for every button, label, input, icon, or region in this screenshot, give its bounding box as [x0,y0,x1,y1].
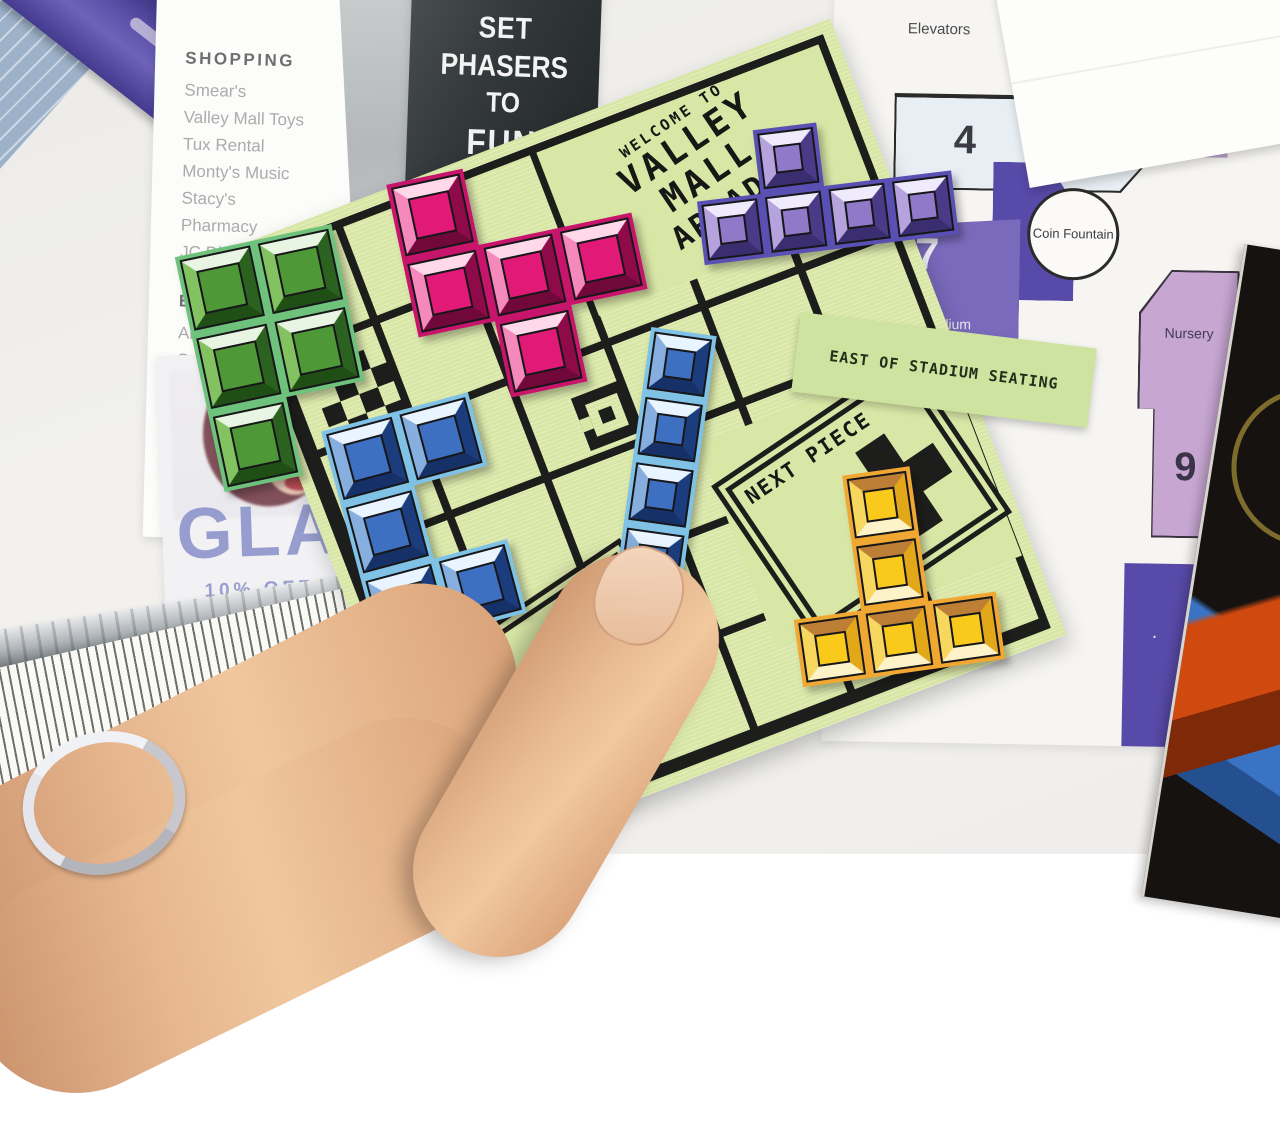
piece-block [842,466,919,543]
piece-block [760,186,831,257]
piece-block [928,591,1005,668]
piece-block [495,305,588,398]
piece-block [208,397,303,492]
piece-block [852,534,929,611]
piece-block [555,213,648,306]
piece-block [888,170,959,241]
piece-block [753,122,824,193]
piece-purple-y-pentomino [689,107,959,265]
piece-block [794,610,871,687]
piece-block [697,194,768,265]
piece-yellow-t-pentomino [775,457,1005,687]
piece-pink-f-pentomino [386,136,664,414]
clue-slip-text: EAST OF STADIUM SEATING [828,347,1059,393]
piece-block [642,327,717,402]
piece-block [633,392,708,467]
piece-block [824,178,895,249]
piece-block [861,601,938,678]
piece-block [270,302,365,397]
piece-block [624,458,699,533]
photo-scene: SHOPPING Smear's Valley Mall Toys Tux Re… [0,0,1280,854]
